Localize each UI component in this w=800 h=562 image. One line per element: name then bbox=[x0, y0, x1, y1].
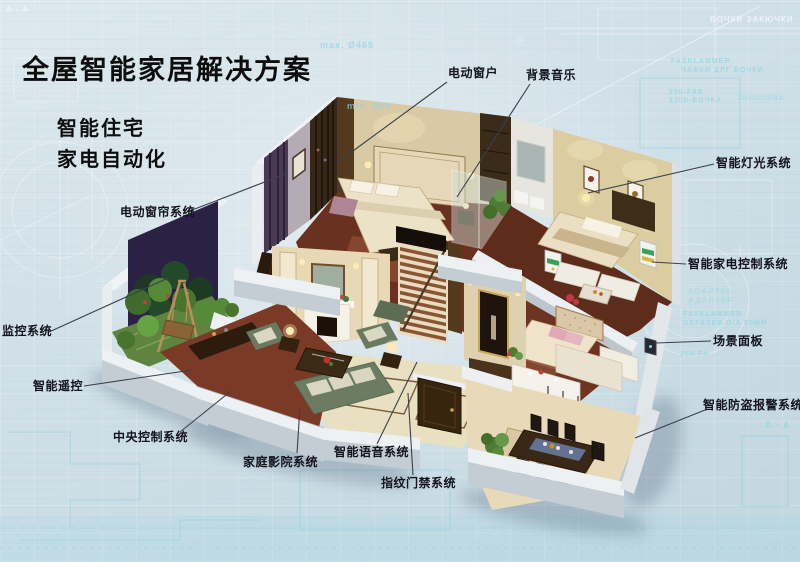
blueprint-text: АДАПТЕР bbox=[688, 296, 734, 305]
callout-central-control bbox=[180, 391, 231, 432]
blueprint-text: FASKLAMMER bbox=[683, 311, 742, 318]
label-fingerprint-access: 指纹门禁系统 bbox=[381, 476, 456, 490]
callout-burglar-alarm bbox=[635, 410, 705, 438]
callout-voice-system bbox=[377, 362, 417, 444]
blueprint-text: min. 820 bbox=[347, 101, 391, 111]
poster: 全屋智能家居解决方案 智能住宅 家电自动化 bbox=[0, 0, 800, 562]
label-smart-lighting: 智能灯光系统 bbox=[716, 156, 791, 170]
blueprint-text: A - A bbox=[765, 420, 790, 430]
label-scene-panel: 场景面板 bbox=[713, 334, 763, 348]
blueprint-text: 200-FA bbox=[680, 351, 709, 358]
label-monitoring-system: 监控系统 bbox=[2, 324, 52, 338]
callout-monitoring-system bbox=[49, 278, 168, 332]
blueprint-text: JUHGOSNA bbox=[737, 95, 785, 102]
callout-electric-curtain bbox=[187, 173, 288, 212]
label-voice-system: 智能语音系统 bbox=[334, 445, 409, 459]
blueprint-text: ЧАФКИ ДЛГ БОЧКИ bbox=[681, 67, 764, 74]
blueprint-text: FASKLAMMER bbox=[671, 58, 730, 65]
blueprint-text: max. Ø465 bbox=[320, 40, 374, 50]
label-smart-appliance-control: 智能家电控制系统 bbox=[688, 257, 788, 271]
blueprint-text: ADAPTEL bbox=[688, 287, 733, 296]
blueprint-text: 200-FAB bbox=[669, 89, 704, 96]
callout-scene-panel bbox=[656, 341, 711, 343]
label-electric-window: 电动窗户 bbox=[448, 66, 498, 80]
label-central-control: 中央控制系统 bbox=[113, 430, 188, 444]
blueprint-text: БОЧКИ ЗАКЮЧКИ bbox=[710, 15, 794, 24]
blueprint-text: GEFASEB DIA 50MM bbox=[683, 320, 768, 327]
label-home-theater: 家庭影院系统 bbox=[243, 455, 318, 469]
blueprint-text: 2J0h-БОЧКА bbox=[669, 97, 722, 104]
label-background-music: 背景音乐 bbox=[526, 68, 576, 82]
callout-fingerprint-access bbox=[408, 393, 413, 475]
callout-smart-remote bbox=[84, 370, 192, 386]
callout-electric-window bbox=[338, 82, 447, 162]
label-burglar-alarm: 智能防盗报警系统 bbox=[703, 398, 800, 412]
callout-smart-appliance-control bbox=[652, 262, 686, 264]
callout-home-theater bbox=[297, 407, 300, 453]
label-smart-remote: 智能遥控 bbox=[33, 379, 83, 393]
label-electric-curtain: 电动窗帘系统 bbox=[120, 205, 195, 219]
callout-smart-lighting bbox=[588, 164, 714, 193]
callout-background-music bbox=[457, 84, 530, 197]
blueprint-text: A - A bbox=[6, 5, 29, 14]
